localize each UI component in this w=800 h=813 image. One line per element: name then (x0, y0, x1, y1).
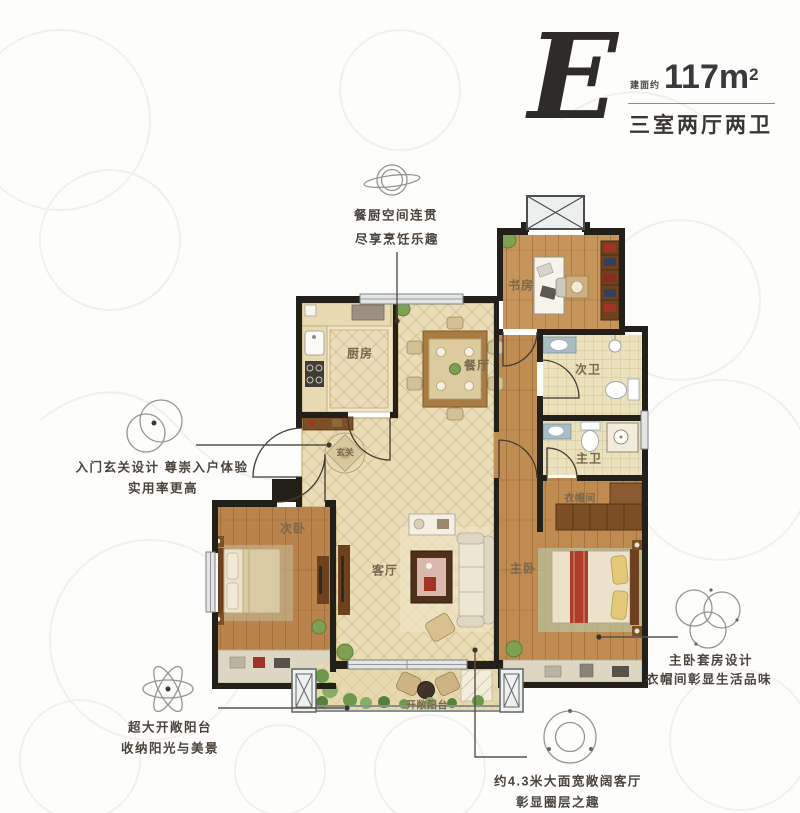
note-foyer-line2: 实用率更高 (128, 478, 198, 497)
atom-icon (143, 663, 193, 716)
area-prefix: 建面约 (630, 78, 660, 91)
room-label-dining: 餐厅 (464, 357, 490, 374)
plan-type-letter: E (528, 18, 618, 136)
room-label-study: 书房 (508, 277, 534, 294)
note-living-line2: 彰显圈层之趣 (516, 792, 600, 811)
note-living-line1: 约4.3米大面宽敞阔客厅 (494, 771, 642, 790)
note-balcony-line1: 超大开敞阳台 (128, 717, 212, 736)
room-label-master-bath: 主卫 (576, 450, 602, 467)
note-suite-line2: 衣帽间彰显生活品味 (646, 669, 772, 688)
area-value: 117m (664, 58, 749, 97)
room-label-living-room: 客厅 (372, 562, 398, 579)
note-suite-line1: 主卧套房设计 (669, 650, 753, 669)
note-foyer-line1: 入门玄关设计 尊崇入户体验 (76, 457, 249, 476)
ac-unit-right (500, 669, 523, 712)
floors (218, 235, 642, 712)
saturn-icon (364, 165, 421, 195)
area-superscript: 2 (749, 65, 758, 85)
room-label-second-bath: 次卫 (575, 361, 601, 378)
room-label-kitchen: 厨房 (347, 345, 373, 362)
room-label-second-bedroom: 次卧 (280, 520, 306, 537)
study-bay-window (527, 196, 584, 229)
note-kitchen-line2: 尽享烹饪乐趣 (355, 229, 439, 248)
living-circles-icon (544, 709, 596, 763)
layout-description: 三室两厅两卫 (629, 109, 775, 139)
header-divider (628, 103, 775, 104)
floorplan-page: E 建面约 117m 2 三室两厅两卫 厨房 餐厅 书房 次卫 主卫 衣帽间 玄… (0, 0, 800, 813)
suite-circles-icon (676, 588, 740, 648)
ac-unit-left (292, 669, 316, 712)
second-bedroom-window (206, 552, 215, 612)
dining-top-window (360, 294, 463, 304)
room-label-master-bedroom: 主卧 (510, 560, 536, 577)
note-kitchen-line1: 餐厨空间连贯 (354, 205, 438, 224)
room-label-foyer: 玄关 (336, 446, 354, 459)
master-bath-window (641, 411, 648, 449)
area-line: 建面约 117m 2 (630, 58, 759, 97)
note-balcony-line2: 收纳阳光与美景 (121, 738, 219, 757)
room-label-balcony: 开敞阳台 (406, 697, 448, 712)
room-label-cloakroom: 衣帽间 (564, 490, 596, 505)
balcony-sliding-door (348, 660, 467, 669)
